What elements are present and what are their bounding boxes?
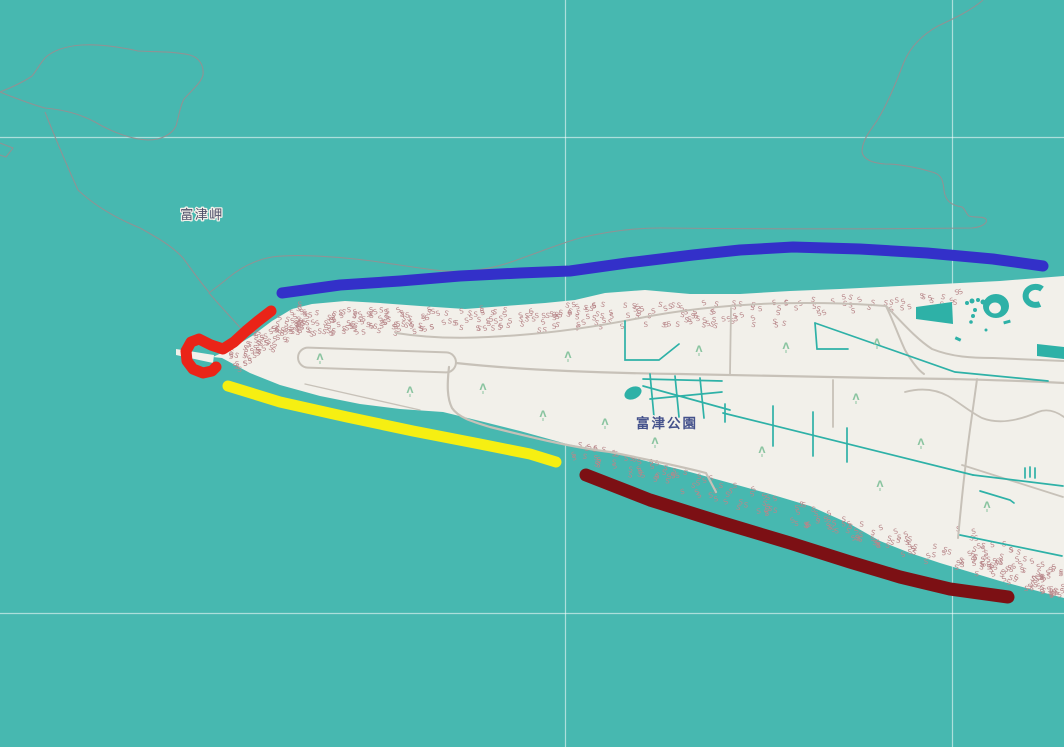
cape-label: 富津岬 [180,207,224,223]
scrub-icon: S [243,360,248,368]
park-label: 富津公園 [636,415,698,432]
scrub-icon: S [777,305,782,313]
scrub-icon: S [246,340,251,348]
scrub-icon: S [473,311,478,319]
pond-dot [973,308,977,312]
scrub-icon: S [894,296,899,304]
road [730,308,731,374]
map-canvas[interactable]: SSSSSSSSSSSSSSSSSSSSSSSSSSSSSSSSSSSSSSSS… [0,0,1064,747]
pond-dot [981,300,986,305]
scrub-icon: S [308,311,313,319]
scrub-icon: S [552,323,557,331]
pond-dot [965,301,969,305]
scrub-icon: S [626,312,631,320]
scrub-icon: S [347,306,352,314]
pond-dot [985,329,988,332]
scrub-icon: S [794,520,799,528]
scrub-icon: S [531,316,536,324]
pond-dot [971,314,975,318]
scrub-icon: S [841,520,846,528]
scrub-icon: S [696,315,701,323]
map-viewport[interactable]: SSSSSSSSSSSSSSSSSSSSSSSSSSSSSSSSSSSSSSSS… [0,0,1064,747]
pond-dot [970,299,975,304]
scrub-icon: S [498,315,503,323]
scrub-icon: S [235,363,240,371]
scrub-icon: S [653,476,658,484]
scrub-icon: S [1061,583,1064,591]
scrub-icon: S [802,501,807,509]
pond-dot [976,298,980,302]
scrub-icon: S [794,305,799,313]
scrub-icon: S [643,321,648,329]
pond-dot [969,320,973,324]
